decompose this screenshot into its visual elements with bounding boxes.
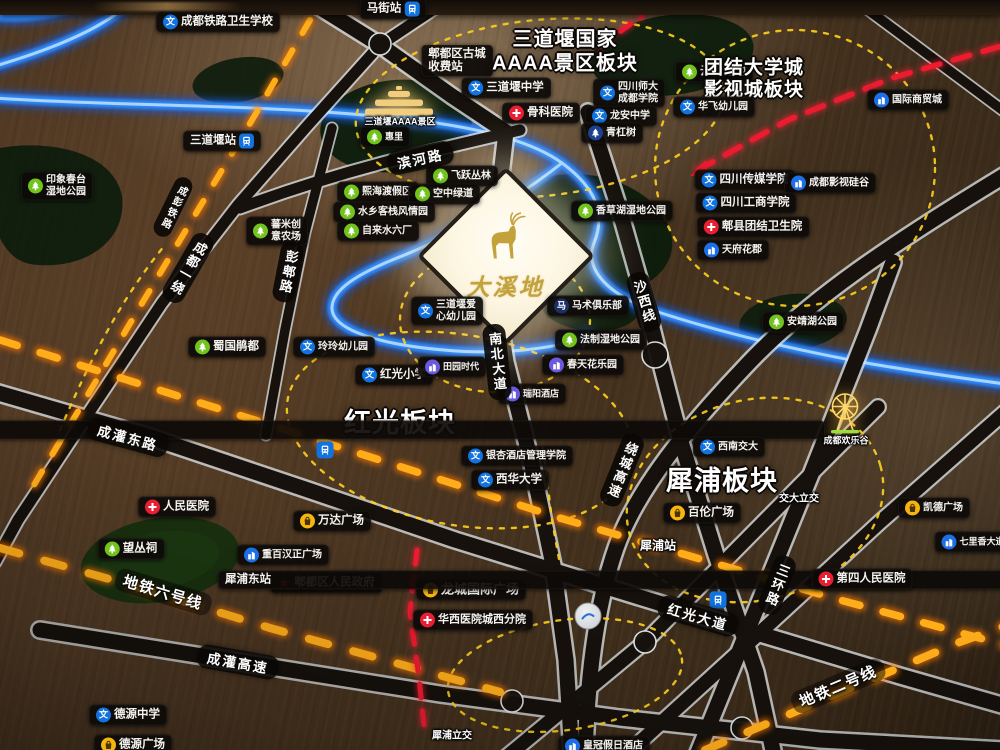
estate2-icon <box>425 360 440 375</box>
poi-label: 华西医院城西分院 <box>413 610 533 631</box>
label-text: 天府花郡 <box>722 244 762 256</box>
label-text: 四川工商学院 <box>721 196 790 209</box>
label-text: 青杠树 <box>606 127 636 139</box>
poi-label: 马马术俱乐部 <box>547 296 629 317</box>
estate-icon <box>244 548 259 563</box>
poi-label: 国际商贸城 <box>867 90 949 111</box>
poi-label: 第四人民医院 <box>812 569 913 590</box>
school-icon: 文 <box>592 109 607 124</box>
park-icon <box>344 185 359 200</box>
map-photo: 大溪地 文成都铁路卫生学校马街站郫都区古城收费站三道堰国家AAAA景区板块云桥湿… <box>0 0 1000 750</box>
metro-icon <box>710 592 727 609</box>
school-icon: 文 <box>478 473 493 488</box>
map-text-label: 成都欢乐谷 <box>823 434 868 447</box>
label-text: 犀浦站 <box>640 539 676 553</box>
school-icon: 文 <box>703 196 718 211</box>
shop-icon <box>905 501 920 516</box>
label-text: 德源中学 <box>114 708 160 721</box>
circular-emblem <box>575 603 602 630</box>
treeb-icon <box>588 126 603 141</box>
school-icon: 文 <box>418 304 433 319</box>
hosp-icon <box>145 500 160 515</box>
school-icon: 文 <box>680 100 695 115</box>
deer-icon <box>483 211 529 263</box>
label-text: 飞跃丛林 <box>451 170 491 182</box>
poi-label: 德源广场 <box>94 735 172 750</box>
poi-label: 文德源中学 <box>89 705 167 726</box>
poi-label: 法制湿地公园 <box>555 330 647 351</box>
poi-label: 文四川传媒学院 <box>695 170 796 191</box>
poi-label: 万达广场 <box>293 511 371 532</box>
map-text-label: 交大立交 <box>779 490 819 505</box>
label-text: 人民医院 <box>163 500 209 513</box>
label-text: 田园时代 <box>443 362 479 372</box>
frame-reflection <box>92 2 242 11</box>
label-text: 彭郫路 <box>276 248 299 295</box>
label-text: 凯德广场 <box>923 502 963 514</box>
area-plate-label: 三道堰国家AAAA景区板块 <box>492 28 638 75</box>
poi-label: 文西南交大 <box>693 437 765 458</box>
poi-label: 文四川工商学院 <box>696 193 797 214</box>
label-text: 南北大道 <box>486 331 507 392</box>
label-text: 成都铁路卫生学校 <box>181 15 273 28</box>
label-text: 成都影视硅谷 <box>809 177 869 189</box>
label-text: 郫都区古城收费站 <box>428 48 486 74</box>
poi-label: 春天花乐园 <box>542 355 624 376</box>
poi-label: 文四川师大成都学院 <box>593 79 665 108</box>
park-icon <box>344 224 359 239</box>
label-text: 三道堰中学 <box>486 81 544 94</box>
poi-label: 七里香大道 <box>934 532 1000 553</box>
poi-label: 水乡客栈风情园 <box>333 202 435 223</box>
poi-label: 印象春台湿地公园 <box>21 172 93 201</box>
label-text: 水乡客栈风情园 <box>358 206 428 218</box>
label-text: 百伦广场 <box>688 506 734 519</box>
school-icon: 文 <box>702 173 717 188</box>
poi-label: 文华飞幼儿园 <box>673 97 755 118</box>
estate-icon <box>941 535 956 550</box>
label-text: 团结大学城影视城板块 <box>704 58 804 101</box>
label-text: 玲玲幼儿园 <box>318 341 368 353</box>
school-icon: 文 <box>700 440 715 455</box>
label-text: 华飞幼儿园 <box>698 101 748 113</box>
poi-label: 青杠树 <box>581 123 643 144</box>
poi-label: 文三道堰中学 <box>461 78 551 99</box>
label-text: 三道堰站 <box>190 134 236 147</box>
school-icon: 文 <box>163 15 178 30</box>
deer-body <box>492 225 516 258</box>
poi-label: 田园时代 <box>418 357 486 378</box>
poi-label: 安靖湖公园 <box>762 312 844 333</box>
label-text: 交大立交 <box>779 494 819 505</box>
poi-label: 文三道堰爱心幼儿园 <box>411 297 483 326</box>
label-text: 华西医院城西分院 <box>438 614 526 627</box>
estate-icon <box>874 93 889 108</box>
poi-label: 成都影视硅谷 <box>784 173 876 194</box>
map-text-label: 犀浦站 <box>640 537 676 554</box>
poi-label: 郫都区古城收费站 <box>421 45 493 77</box>
park-icon <box>28 179 43 194</box>
label-text: 三道堰爱心幼儿园 <box>436 300 476 323</box>
label-text: 蕃米创意农场 <box>271 220 301 243</box>
metro-icon <box>239 134 254 149</box>
label-text: 印象春台湿地公园 <box>46 175 86 198</box>
park-icon <box>253 224 268 239</box>
school-icon: 文 <box>300 340 315 355</box>
horse-icon: 马 <box>554 299 569 314</box>
poi-label: 皇冠假日酒店 <box>558 736 650 750</box>
label-text: 熙海渡假区 <box>362 186 412 198</box>
label-text: 三道堰AAAA景区 <box>365 117 436 127</box>
poi-label: 熙海渡假区 <box>337 182 419 203</box>
label-text: 自来水六厂 <box>362 225 412 237</box>
label-text: 蜀国鹃都 <box>213 340 259 353</box>
label-text: 银杏酒店管理学院 <box>486 450 566 462</box>
label-text: 安靖湖公园 <box>787 316 837 328</box>
park-icon <box>578 204 593 219</box>
station-label: 马街站 <box>360 0 427 20</box>
label-text: 马术俱乐部 <box>572 300 622 312</box>
poi-label: 蜀国鹃都 <box>188 337 266 358</box>
poi-label: 自来水六厂 <box>337 221 419 242</box>
school-icon: 文 <box>96 708 111 723</box>
park-icon <box>415 187 430 202</box>
label-text: 成都欢乐谷 <box>823 436 868 446</box>
estate2-icon <box>549 358 564 373</box>
label-text: 瑞阳酒店 <box>523 389 559 399</box>
map-text-label: 犀浦立交 <box>432 727 472 742</box>
poi-label: 郫县团结卫生院 <box>697 217 810 238</box>
label-text: 四川师大成都学院 <box>618 82 658 105</box>
label-text: 德源广场 <box>119 738 165 750</box>
park-icon <box>562 333 577 348</box>
label-text: 春天花乐园 <box>567 359 617 371</box>
label-text: 郫县团结卫生院 <box>722 220 803 233</box>
park-icon <box>769 315 784 330</box>
hosp-icon <box>509 106 524 121</box>
label-text: 香草湖湿地公园 <box>596 205 666 217</box>
hosp-icon <box>819 572 834 587</box>
poi-label: 文成都铁路卫生学校 <box>156 12 280 33</box>
park-icon <box>195 340 210 355</box>
area-plate-label: 犀浦板块 <box>666 466 778 498</box>
park-icon <box>340 205 355 220</box>
hosp-icon <box>420 613 435 628</box>
estate-icon <box>704 243 719 258</box>
shop-icon <box>670 506 685 521</box>
label-text: 犀浦立交 <box>432 731 472 742</box>
label-text: 三道堰国家AAAA景区板块 <box>492 28 638 74</box>
school-icon: 文 <box>600 86 615 101</box>
label-text: 犀浦东站 <box>225 574 271 587</box>
label-text: 空中绿道 <box>433 188 473 200</box>
poi-label: 百伦广场 <box>663 503 741 524</box>
poi-label: 文西华大学 <box>471 470 549 491</box>
poi-label: 文玲玲幼儿园 <box>293 337 375 358</box>
label-text: 法制湿地公园 <box>580 334 640 346</box>
poi-label: 香草湖湿地公园 <box>571 201 673 222</box>
school-icon: 文 <box>468 449 483 464</box>
label-text: 国际商贸城 <box>892 94 942 106</box>
label-text: 第四人民医院 <box>837 572 906 585</box>
poi-label: 人民医院 <box>138 497 216 518</box>
label-text: 骨科医院 <box>527 106 573 119</box>
poi-label: 文银杏酒店管理学院 <box>461 446 573 467</box>
label-text: 四川传媒学院 <box>720 173 789 186</box>
station-label: 三道堰站 <box>183 131 261 152</box>
metro-icon <box>404 2 419 17</box>
school-icon: 文 <box>468 81 483 96</box>
label-text: 重百汉正广场 <box>262 549 322 561</box>
park-icon <box>433 169 448 184</box>
label-text: 西华大学 <box>496 473 542 486</box>
poi-label: 天府花郡 <box>697 240 769 261</box>
estate-icon <box>791 176 806 191</box>
park-icon <box>367 130 382 145</box>
estate-icon <box>565 739 580 750</box>
label-text: 西南交大 <box>718 441 758 453</box>
label-text: 皇冠假日酒店 <box>583 740 643 750</box>
metro-icon <box>317 442 334 459</box>
label-text: 七里香大道 <box>959 537 1000 547</box>
park-icon <box>682 65 697 80</box>
label-text: 犀浦板块 <box>666 466 778 496</box>
poi-label: 骨科医院 <box>502 103 580 124</box>
label-text: 万达广场 <box>318 514 364 527</box>
shop-icon <box>101 738 116 750</box>
poi-label: 望丛祠 <box>98 539 165 560</box>
poi-label: 凯德广场 <box>898 498 970 519</box>
school-icon: 文 <box>362 368 377 383</box>
label-text: 马街站 <box>367 2 402 15</box>
hosp-icon <box>704 220 719 235</box>
label-text: 惠里 <box>385 132 403 142</box>
park-icon <box>105 542 120 557</box>
label-text: 龙安中学 <box>610 110 650 122</box>
poi-label: 重百汉正广场 <box>237 545 329 566</box>
poi-label: 蕃米创意农场 <box>246 217 308 246</box>
shop-icon <box>300 514 315 529</box>
poi-label: 惠里 <box>360 127 410 148</box>
label-text: 望丛祠 <box>123 542 158 555</box>
